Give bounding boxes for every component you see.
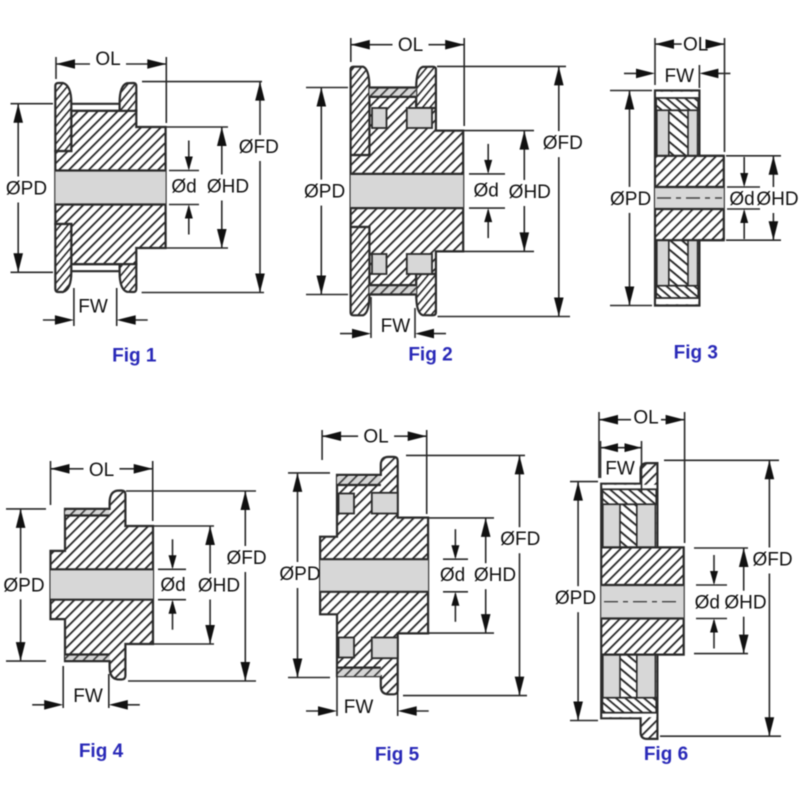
svg-text:FW: FW bbox=[78, 297, 108, 318]
svg-text:OL: OL bbox=[633, 408, 658, 429]
svg-text:ØFD: ØFD bbox=[239, 137, 279, 158]
svg-text:ØPD: ØPD bbox=[304, 182, 345, 203]
svg-text:FW: FW bbox=[665, 66, 695, 87]
svg-text:Fig 1: Fig 1 bbox=[112, 346, 157, 367]
svg-text:Ød: Ød bbox=[474, 181, 499, 202]
svg-text:ØFD: ØFD bbox=[543, 133, 583, 154]
svg-text:ØPD: ØPD bbox=[555, 588, 596, 609]
svg-text:Fig 2: Fig 2 bbox=[408, 345, 452, 366]
svg-text:ØFD: ØFD bbox=[500, 529, 540, 550]
svg-text:Fig 4: Fig 4 bbox=[79, 741, 124, 762]
svg-text:ØPD: ØPD bbox=[279, 564, 320, 585]
svg-text:OL: OL bbox=[95, 49, 120, 70]
svg-text:ØHD: ØHD bbox=[756, 189, 798, 210]
svg-text:ØPD: ØPD bbox=[610, 189, 651, 210]
svg-text:Ød: Ød bbox=[729, 189, 754, 210]
svg-text:Ød: Ød bbox=[440, 565, 465, 586]
svg-text:FW: FW bbox=[73, 686, 103, 707]
svg-text:ØFD: ØFD bbox=[752, 550, 792, 571]
svg-text:Ød: Ød bbox=[695, 593, 720, 614]
svg-text:FW: FW bbox=[344, 697, 374, 718]
svg-text:ØPD: ØPD bbox=[6, 179, 47, 200]
svg-text:ØPD: ØPD bbox=[3, 575, 44, 596]
svg-text:Ød: Ød bbox=[160, 575, 185, 596]
svg-text:ØHD: ØHD bbox=[509, 182, 551, 203]
svg-text:OL: OL bbox=[363, 427, 388, 448]
svg-text:FW: FW bbox=[381, 316, 411, 337]
svg-text:OL: OL bbox=[398, 35, 423, 56]
svg-text:Fig 6: Fig 6 bbox=[644, 744, 688, 765]
svg-text:ØHD: ØHD bbox=[198, 576, 240, 597]
svg-text:OL: OL bbox=[683, 35, 708, 56]
svg-text:Fig 3: Fig 3 bbox=[674, 343, 718, 364]
svg-text:ØHD: ØHD bbox=[474, 565, 516, 586]
svg-text:ØHD: ØHD bbox=[724, 593, 766, 614]
svg-text:FW: FW bbox=[605, 459, 635, 480]
svg-text:Ød: Ød bbox=[171, 177, 196, 198]
svg-text:Fig 5: Fig 5 bbox=[375, 745, 420, 766]
svg-text:OL: OL bbox=[89, 460, 114, 481]
svg-text:ØHD: ØHD bbox=[207, 177, 249, 198]
svg-text:ØFD: ØFD bbox=[227, 548, 267, 569]
